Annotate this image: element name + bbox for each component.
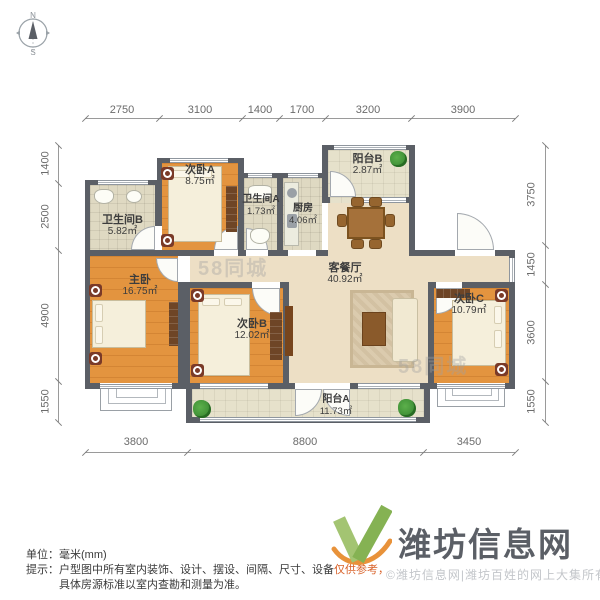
dim-top-2: 3100 <box>170 104 230 117</box>
wall <box>178 282 190 389</box>
room-label-kitchen: 厨房4.06㎡ <box>281 203 325 227</box>
coffee-table <box>362 312 386 346</box>
living-balcony-window <box>358 383 420 389</box>
wall <box>350 383 358 389</box>
site-logo-text: 潍坊信息网 <box>398 518 573 566</box>
site-watermark: 58同城 <box>398 350 468 379</box>
dim-bottom-1: 3800 <box>106 436 166 449</box>
dim-left-3: 4900 <box>40 286 53 346</box>
bathroom-a-window <box>248 173 272 178</box>
bedroom-b-balcony-window <box>200 383 268 389</box>
master-bay-window <box>100 389 172 411</box>
dim-top-4: 1700 <box>272 104 332 117</box>
dining-chair <box>385 214 395 227</box>
dining-chair <box>351 197 364 207</box>
pillow <box>95 326 103 344</box>
room-label-bedroom-a: 次卧A8.75㎡ <box>165 164 235 188</box>
tip-main: 户型图中所有室内装饰、设计、摆设、间隔、尺寸、设备 <box>59 564 334 576</box>
room-label-bathroom-a: 卫生间A1.73㎡ <box>236 194 286 218</box>
dim-right-1: 3750 <box>526 165 539 225</box>
bedroom-b-nightstand-lamp <box>191 289 204 302</box>
toilet <box>94 189 114 204</box>
room-label-bathroom-b: 卫生间B5.82㎡ <box>85 214 160 238</box>
dim-bottom-3: 3450 <box>439 436 499 449</box>
site-logo-icon <box>330 503 392 577</box>
bedroom-b-nightstand-lamp <box>191 364 204 377</box>
room-label-balcony-b: 阳台B2.87㎡ <box>330 153 405 177</box>
dining-chair <box>337 214 347 227</box>
dim-tick <box>512 449 519 456</box>
wall <box>268 250 288 256</box>
unit-note: 单位：毫米(mm) <box>26 548 107 563</box>
wall <box>85 383 100 389</box>
wall <box>85 256 90 389</box>
wall <box>316 250 328 256</box>
wall <box>409 250 455 256</box>
dining-chair <box>351 239 364 249</box>
kitchen-window <box>288 173 318 178</box>
room-label-bedroom-c: 次卧C10.79㎡ <box>430 293 508 317</box>
balcony-b-window <box>334 145 406 150</box>
bedroom-a-window <box>170 158 228 163</box>
dim-left-1: 1400 <box>40 134 53 194</box>
entrance-door <box>457 213 494 250</box>
living-east-window <box>509 258 515 282</box>
bedroom-c-nightstand-lamp <box>495 363 508 376</box>
plant <box>398 399 416 417</box>
pillow <box>494 330 502 348</box>
dining-chair <box>369 197 382 207</box>
pillow <box>202 298 220 306</box>
dim-right-3: 3600 <box>526 303 539 363</box>
compass-north-arrow-icon <box>29 21 38 39</box>
compass-south-label: S <box>30 48 35 57</box>
master-dresser <box>169 302 178 346</box>
dining-table <box>347 207 385 239</box>
dim-top-5: 3200 <box>338 104 398 117</box>
dim-tick <box>512 115 519 122</box>
wall <box>268 383 295 389</box>
kitchen-sink <box>287 188 297 198</box>
dimension-line-top <box>85 118 515 119</box>
wall <box>505 383 515 389</box>
dim-bottom-2: 8800 <box>275 436 335 449</box>
dining-chair <box>369 239 382 249</box>
dim-left-4: 1550 <box>40 372 53 432</box>
room-label-master: 主卧16.75㎡ <box>100 274 180 298</box>
dim-top-1: 2750 <box>92 104 152 117</box>
copyright-line: ©潍坊信息网|潍坊百姓的网上大集所有 <box>386 566 600 583</box>
tip-line-2: 具体房源标准以室内查勘和测量为准。 <box>59 578 246 593</box>
bedroom-c-bay-window <box>437 389 505 407</box>
room-label-living: 客餐厅40.92㎡ <box>305 262 385 286</box>
site-watermark: 58同城 <box>198 252 268 281</box>
balcony-b-rail-window <box>358 197 406 203</box>
dim-left-2: 2500 <box>40 187 53 247</box>
compass-north-label: N <box>30 11 36 20</box>
dimension-line-bottom <box>85 452 515 453</box>
room-label-bedroom-b: 次卧B12.02㎡ <box>212 318 292 342</box>
bathroom-b-window <box>98 180 148 185</box>
dim-right-2: 1450 <box>526 235 539 295</box>
wall <box>190 282 252 288</box>
master-nightstand-lamp <box>89 352 102 365</box>
wall <box>178 250 190 256</box>
dim-top-6: 3900 <box>433 104 493 117</box>
toilet <box>250 228 270 244</box>
room-label-balcony-a: 阳台A11.73㎡ <box>296 394 376 418</box>
wall <box>322 147 328 203</box>
tip-prefix: 提示： <box>26 564 59 576</box>
compass: N S <box>9 9 57 57</box>
wall <box>85 250 214 256</box>
sink <box>126 190 142 203</box>
plant <box>193 400 211 418</box>
pillow <box>95 304 103 322</box>
bedroom-a-nightstand-lamp <box>161 234 174 247</box>
pillow <box>224 298 242 306</box>
dim-right-4: 1550 <box>526 372 539 432</box>
wall <box>462 282 511 288</box>
